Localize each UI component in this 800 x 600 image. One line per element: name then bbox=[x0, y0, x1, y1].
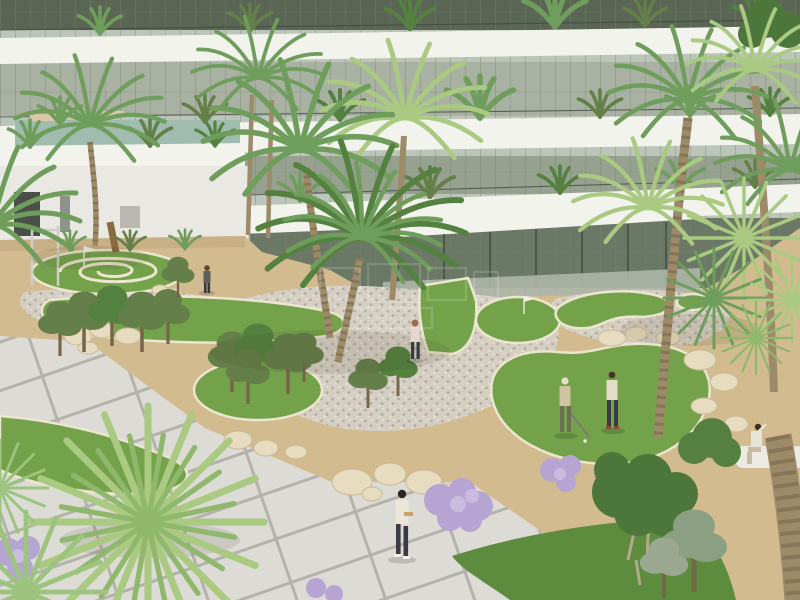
golf-ball bbox=[583, 439, 586, 442]
utility-box bbox=[120, 206, 140, 228]
courtyard-render-canvas bbox=[0, 0, 800, 600]
rendering-image bbox=[0, 0, 800, 600]
round-green bbox=[476, 297, 560, 343]
